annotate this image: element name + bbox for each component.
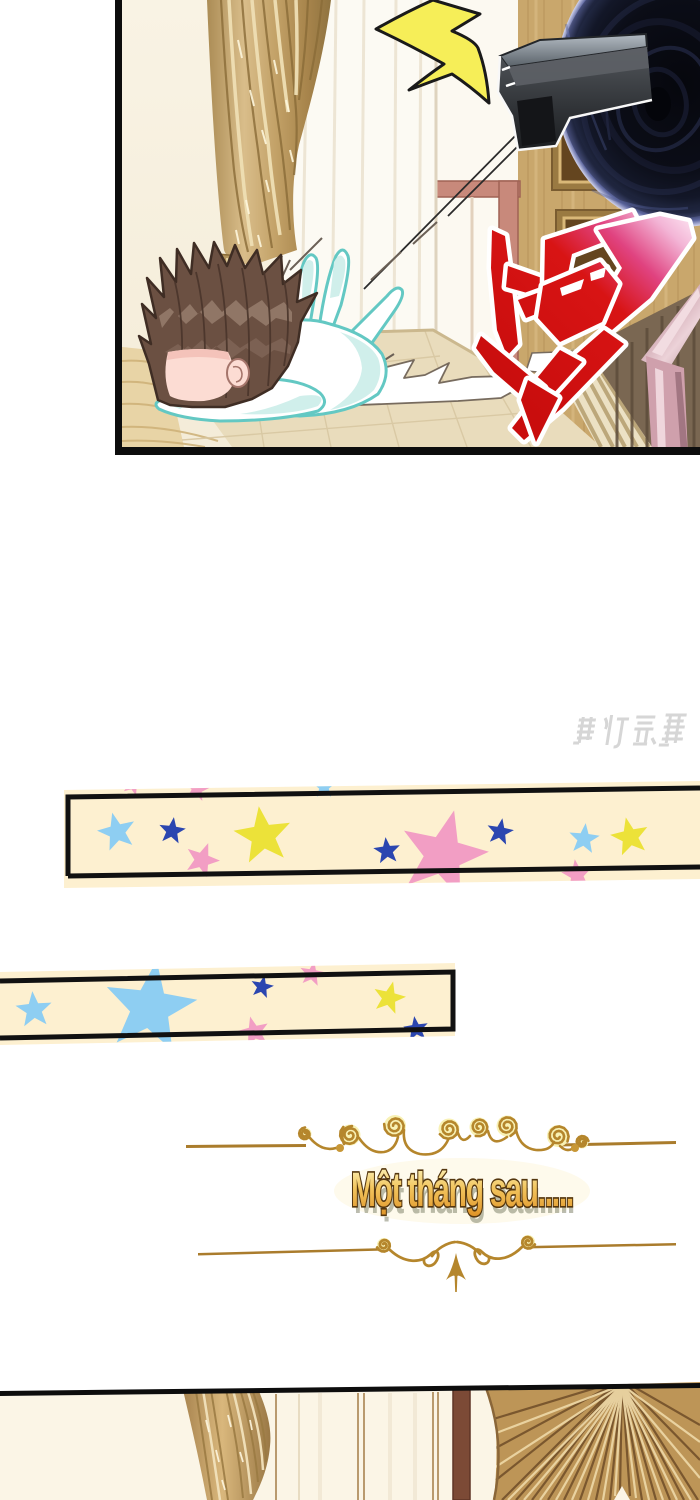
svg-text:Một tháng sau.....: Một tháng sau..... — [351, 1164, 573, 1217]
